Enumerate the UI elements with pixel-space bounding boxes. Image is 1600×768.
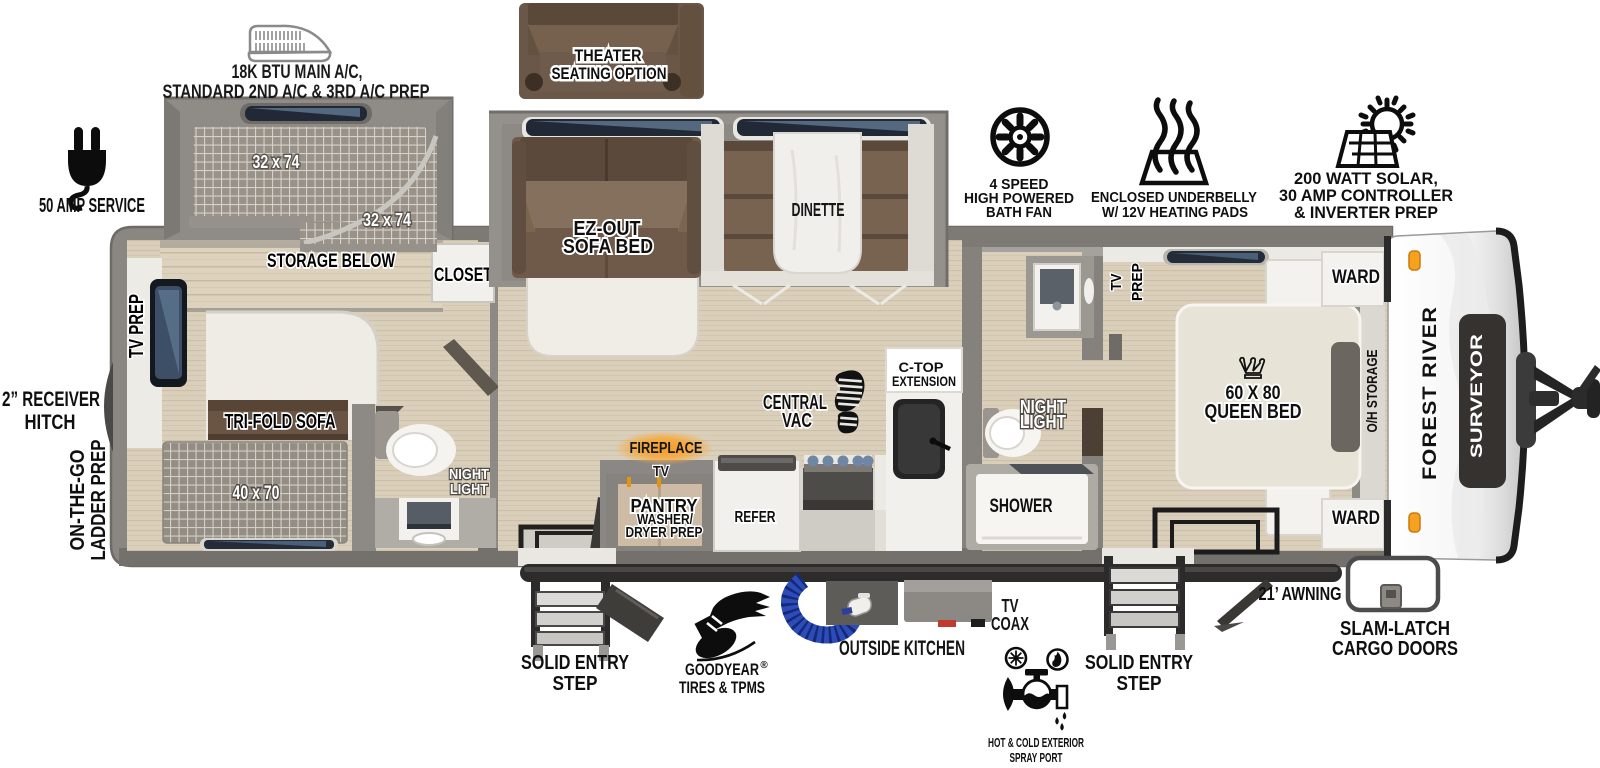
svg-text:COAX: COAX [991, 614, 1029, 634]
svg-text:STORAGE BELOW: STORAGE BELOW [267, 251, 395, 272]
svg-text:18K BTU MAIN A/C,: 18K BTU MAIN A/C, [232, 62, 363, 83]
svg-text:SOLID ENTRY: SOLID ENTRY [1085, 652, 1194, 674]
svg-text:LADDER PREP: LADDER PREP [88, 440, 110, 561]
svg-text:21’ AWNING: 21’ AWNING [1259, 584, 1342, 604]
svg-text:32 x 74: 32 x 74 [253, 152, 300, 172]
svg-text:®: ® [760, 660, 768, 671]
svg-text:& INVERTER PREP: & INVERTER PREP [1294, 203, 1438, 222]
svg-text:WARD: WARD [1332, 508, 1380, 529]
svg-text:TV: TV [653, 463, 669, 480]
svg-text:SEATING OPTION: SEATING OPTION [552, 64, 667, 83]
svg-text:DINETTE: DINETTE [792, 200, 845, 220]
svg-text:REFER: REFER [735, 509, 776, 526]
svg-text:TRI-FOLD SOFA: TRI-FOLD SOFA [225, 411, 336, 433]
svg-text:PREP: PREP [1129, 263, 1146, 301]
svg-text:STEP: STEP [553, 673, 598, 695]
svg-text:40 x 70: 40 x 70 [233, 483, 280, 504]
svg-text:W/ 12V HEATING PADS: W/ 12V HEATING PADS [1102, 205, 1248, 221]
svg-text:O/H STORAGE: O/H STORAGE [1364, 350, 1381, 433]
svg-text:DRYER PREP: DRYER PREP [626, 525, 703, 541]
svg-text:CARGO DOORS: CARGO DOORS [1332, 638, 1458, 660]
svg-text:QUEEN BED: QUEEN BED [1205, 401, 1302, 423]
svg-text:CLOSET: CLOSET [434, 265, 492, 286]
svg-text:FIREPLACE: FIREPLACE [630, 440, 703, 457]
svg-text:SLAM-LATCH: SLAM-LATCH [1340, 618, 1450, 640]
svg-text:ON-THE-GO: ON-THE-GO [67, 450, 89, 551]
svg-text:TV PREP: TV PREP [126, 294, 148, 358]
svg-text:EXTENSION: EXTENSION [892, 374, 956, 389]
svg-text:SHOWER: SHOWER [990, 496, 1053, 517]
svg-text:FOREST RIVER: FOREST RIVER [1420, 306, 1441, 480]
svg-text:STANDARD 2ND A/C & 3RD A/C PRE: STANDARD 2ND A/C & 3RD A/C PREP [163, 82, 430, 103]
svg-text:TV: TV [1108, 274, 1125, 291]
svg-text:TIRES & TPMS: TIRES & TPMS [679, 679, 765, 697]
svg-text:C-TOP: C-TOP [899, 360, 944, 375]
svg-text:TV: TV [1002, 596, 1019, 616]
svg-text:OUTSIDE KITCHEN: OUTSIDE KITCHEN [839, 637, 965, 660]
svg-text:GOODYEAR: GOODYEAR [685, 661, 759, 679]
svg-text:THEATER: THEATER [575, 46, 642, 65]
svg-text:VAC: VAC [782, 410, 812, 432]
svg-text:HITCH: HITCH [25, 411, 76, 434]
svg-text:STEP: STEP [1117, 673, 1162, 695]
svg-text:BATH FAN: BATH FAN [986, 205, 1052, 221]
svg-text:SOLID ENTRY: SOLID ENTRY [521, 652, 630, 674]
svg-text:HOT & COLD EXTERIOR: HOT & COLD EXTERIOR [988, 735, 1084, 750]
svg-text:LIGHT: LIGHT [1020, 412, 1066, 432]
svg-text:LIGHT: LIGHT [450, 481, 488, 498]
svg-text:2” RECEIVER: 2” RECEIVER [2, 388, 100, 411]
svg-text:ENCLOSED UNDERBELLY: ENCLOSED UNDERBELLY [1091, 190, 1257, 206]
svg-text:SURVEYOR: SURVEYOR [1467, 334, 1486, 458]
svg-text:WARD: WARD [1332, 267, 1380, 288]
svg-text:32 x 74: 32 x 74 [363, 210, 411, 230]
svg-text:SOFA BED: SOFA BED [563, 236, 653, 258]
svg-text:50 AMP SERVICE: 50 AMP SERVICE [39, 195, 145, 217]
svg-text:SPRAY PORT: SPRAY PORT [1010, 750, 1063, 763]
